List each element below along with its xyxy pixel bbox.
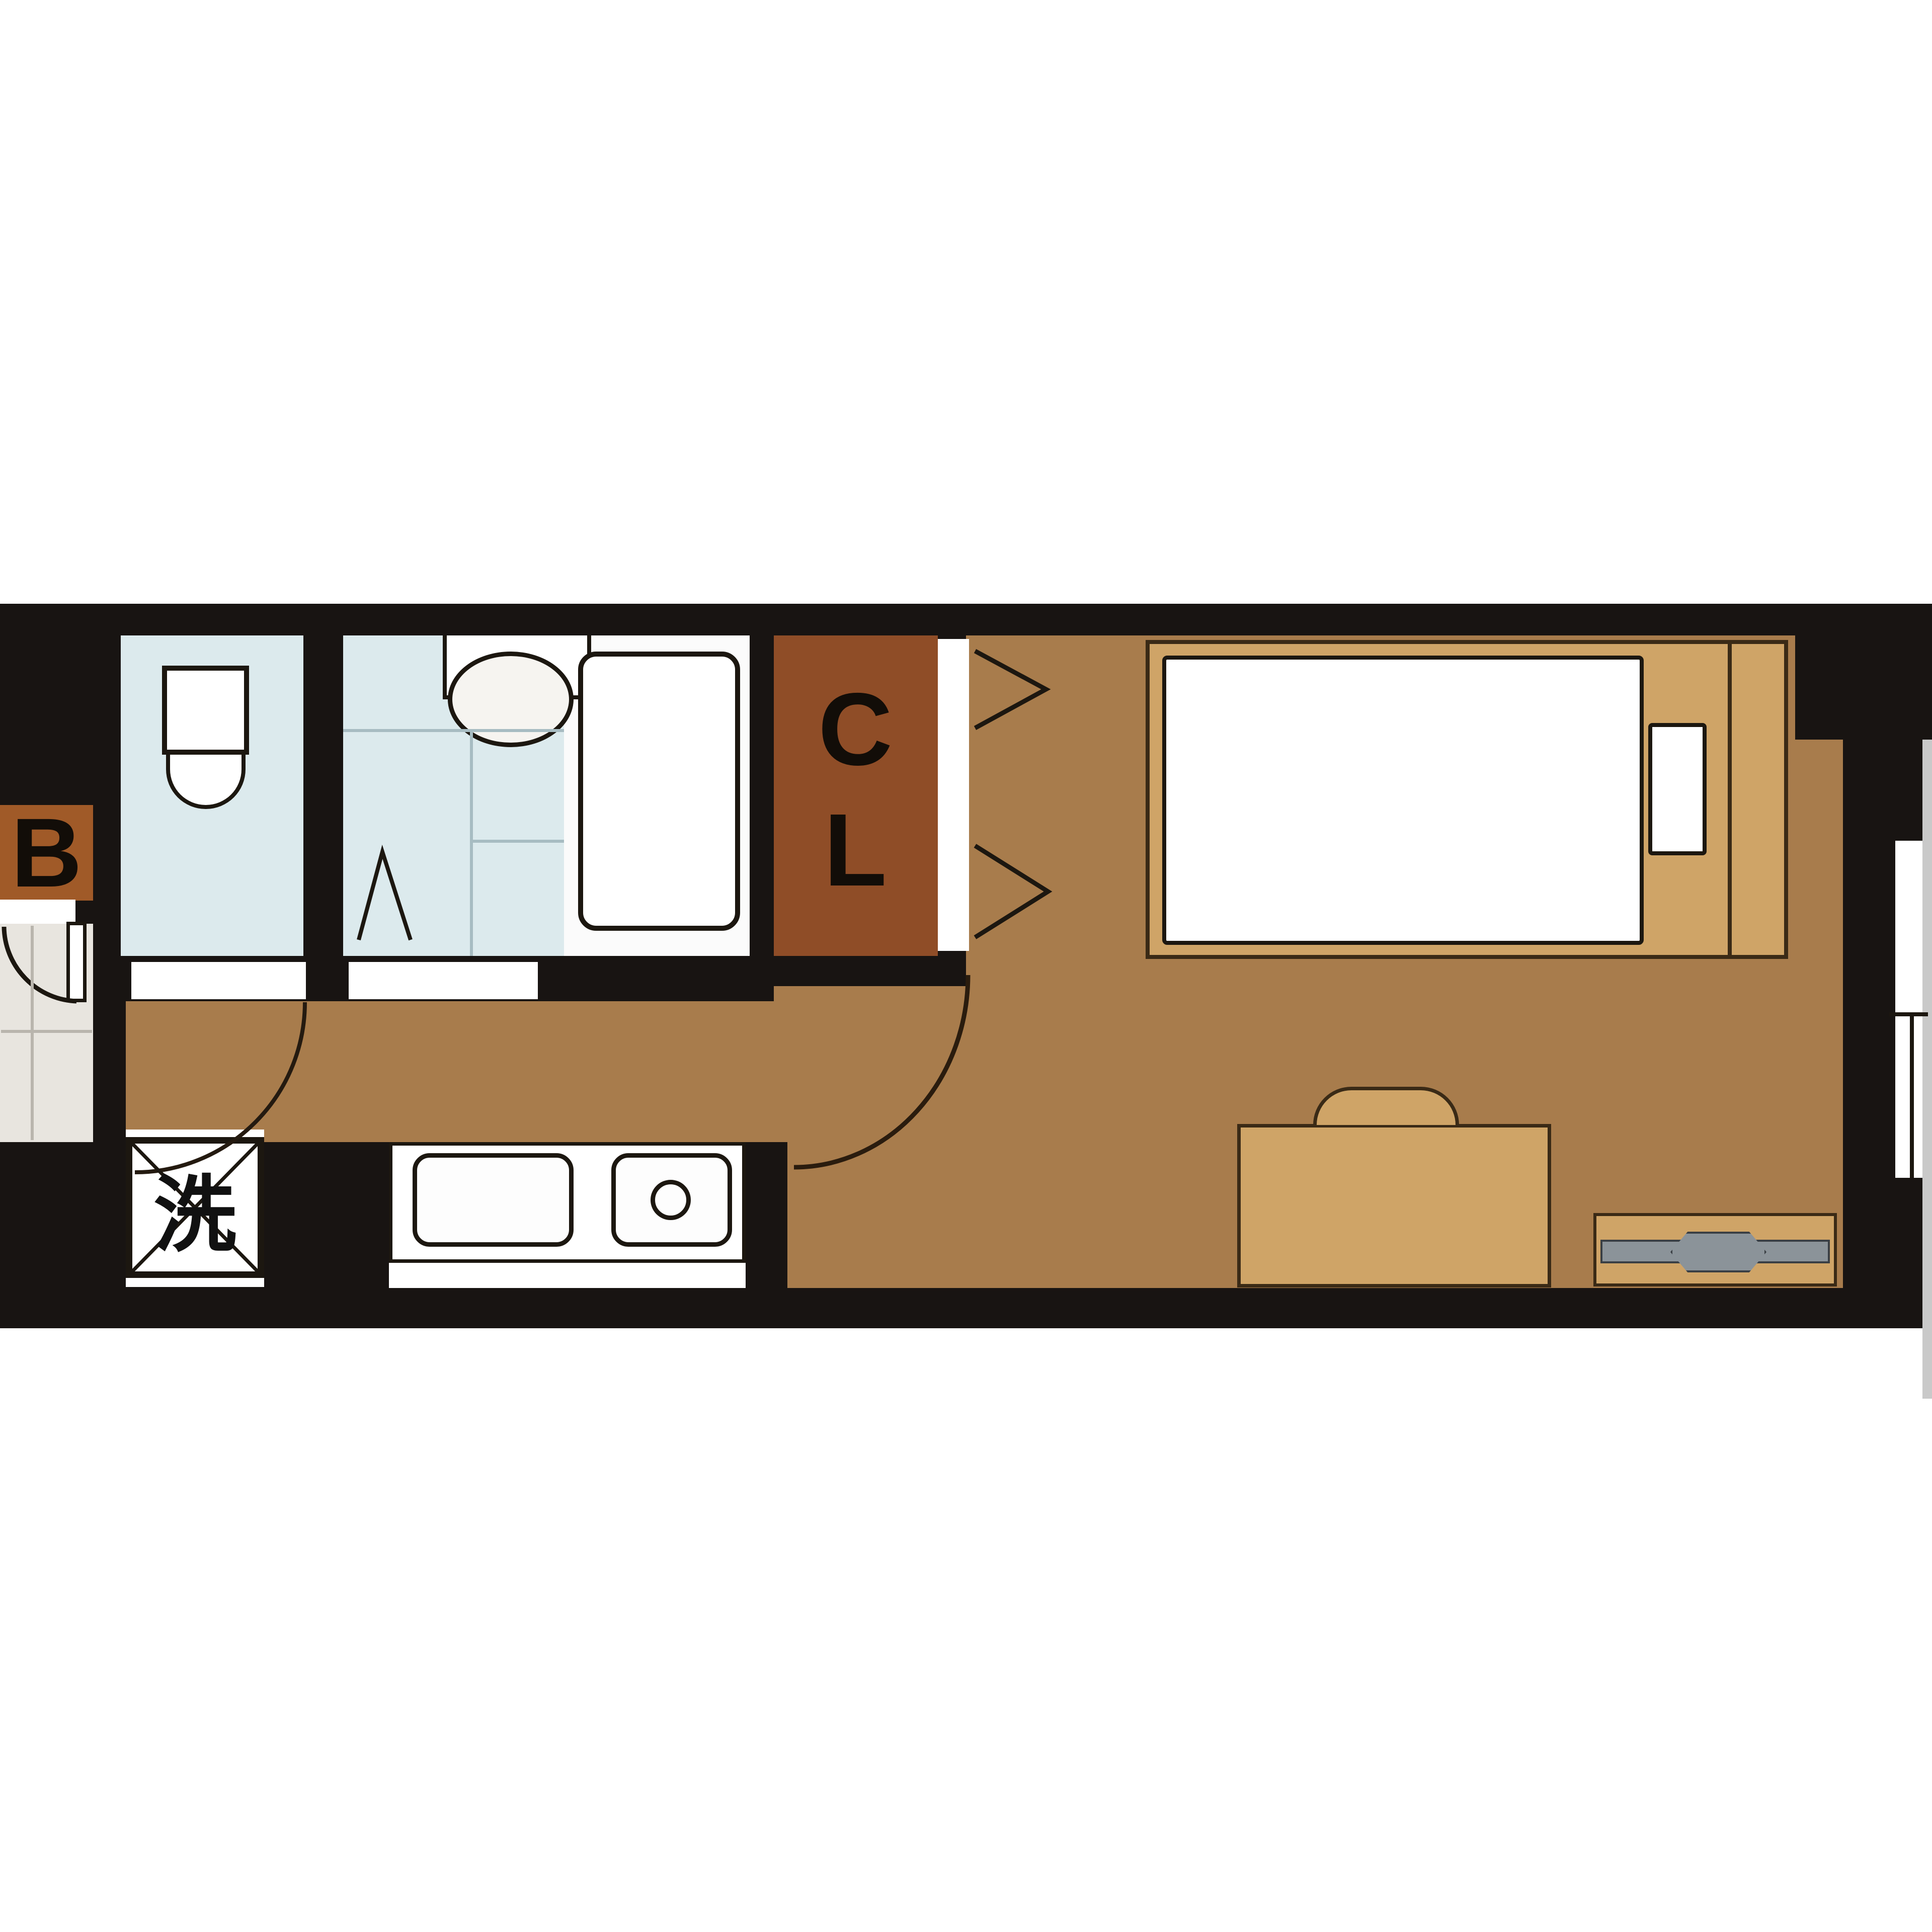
plan-linework: [0, 604, 1932, 1328]
room-door-arc: [794, 975, 968, 1167]
closet-folding-door-icon: [975, 651, 1046, 728]
apartment-outline: B C L 洗: [0, 604, 1932, 1328]
closet-folding-door-icon: [975, 846, 1048, 937]
window-sash-lines: [1889, 1014, 1928, 1178]
washroom-floor-seams: [343, 731, 564, 956]
entrance-tile-seams: [1, 926, 92, 1140]
floor-plan-image: B C L 洗: [0, 0, 1932, 1932]
bath-folding-door-icon: [359, 852, 411, 940]
laundry-label: 洗: [126, 1137, 264, 1278]
entrance-door-arc: [4, 927, 76, 1001]
